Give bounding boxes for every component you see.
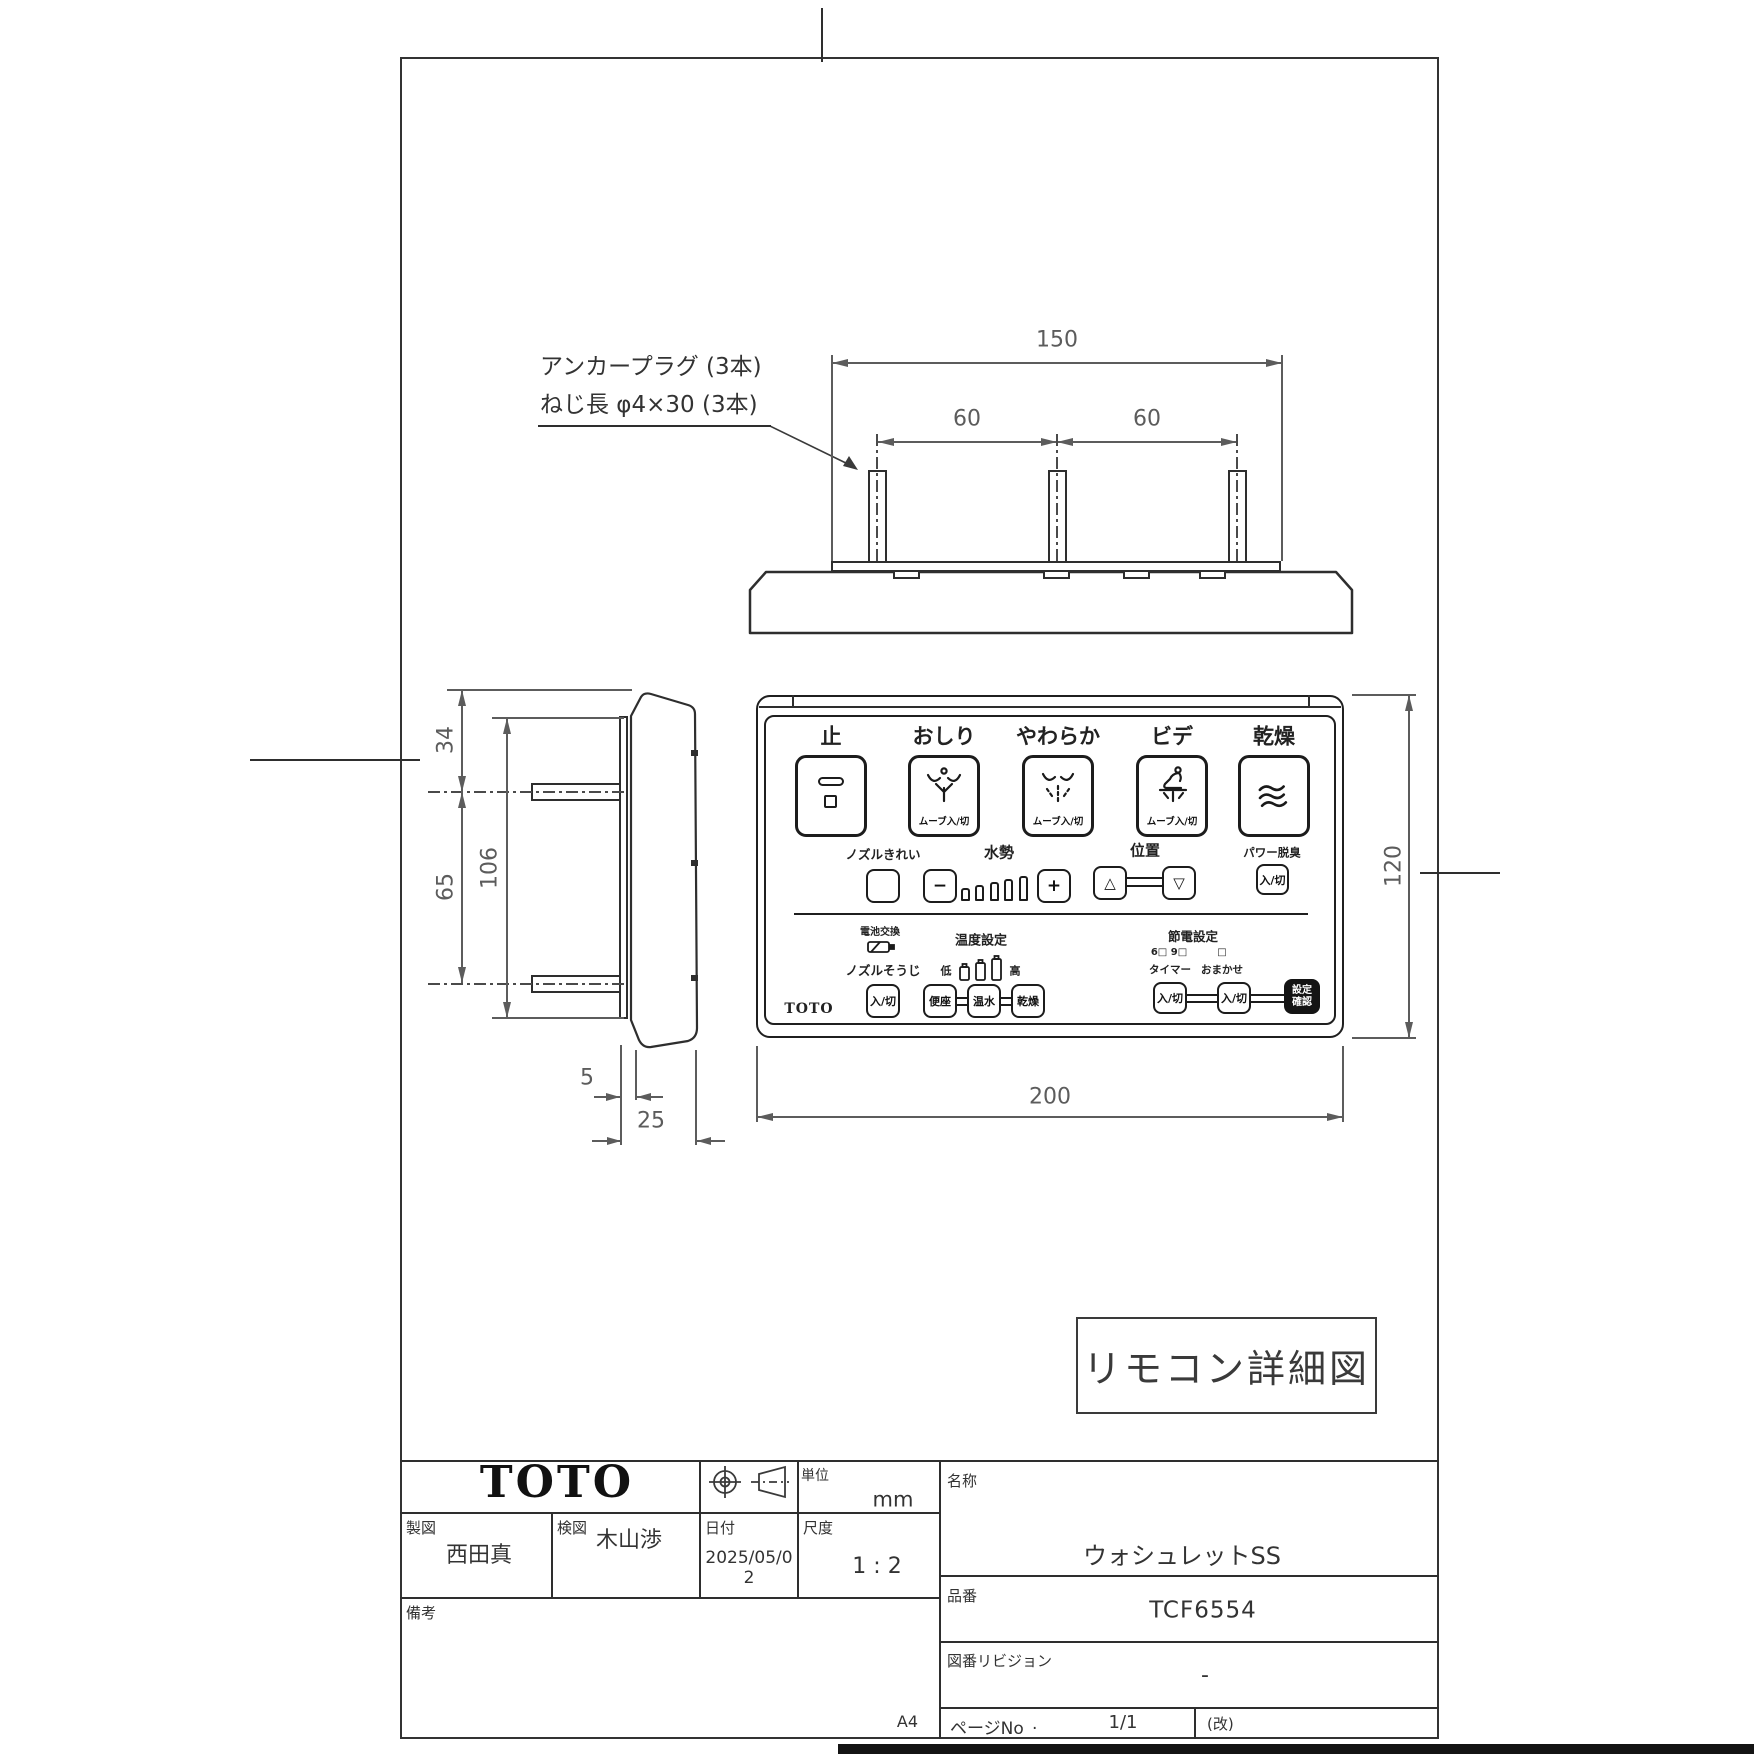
ext-line xyxy=(756,1046,758,1122)
name-label: 名称 xyxy=(947,1470,977,1491)
battery-change-label: 電池交換 xyxy=(860,928,900,938)
plate-notch xyxy=(1308,695,1310,706)
dim-106: 106 xyxy=(478,847,503,889)
bidet-button: ムーブ入/切 xyxy=(1136,755,1208,837)
nozzle-wash-label: ノズルそうじ xyxy=(845,965,920,978)
eco-setting-label: 節電設定 xyxy=(1168,931,1218,944)
dim-arrow xyxy=(1327,1113,1343,1121)
dry-label: 乾燥 xyxy=(1253,727,1295,748)
scan-edge-bar xyxy=(838,1744,1754,1754)
ext-line xyxy=(492,717,624,719)
dim-line-120 xyxy=(1408,695,1410,1038)
date-value: 2025/05/02 xyxy=(704,1548,794,1589)
mounting-plate-side-view xyxy=(619,716,628,1019)
drafter-label: 製図 xyxy=(406,1517,436,1538)
dim-150: 150 xyxy=(1036,328,1078,353)
eco-auto-option: □ xyxy=(1217,948,1226,958)
deodorizer-onoff-button: 入/切 xyxy=(1256,864,1289,895)
nozzle-wash-onoff-button: 入/切 xyxy=(866,984,900,1018)
part-number: TCF6554 xyxy=(1149,1600,1257,1623)
dim-arrow xyxy=(458,776,466,792)
scale-value: 1 : 2 xyxy=(852,1556,901,1578)
page-label: ページNo xyxy=(950,1714,1024,1739)
dim-arrow xyxy=(607,1137,621,1145)
button-link xyxy=(1187,994,1217,1003)
remote-brand-logo: TOTO xyxy=(784,1002,833,1016)
title-block-line xyxy=(939,1460,941,1739)
dim-arrow xyxy=(1405,1022,1413,1038)
dim-arrow xyxy=(697,1137,711,1145)
move-onoff-label: ムーブ入/切 xyxy=(1147,817,1197,827)
title-block-line xyxy=(699,1460,701,1597)
title-block-line xyxy=(400,1512,939,1514)
dry-button xyxy=(1238,755,1310,837)
dim-65: 65 xyxy=(434,873,459,901)
dim-line-200 xyxy=(757,1116,1343,1118)
dim-arrow xyxy=(1057,438,1073,446)
water-level-bar-2 xyxy=(975,885,984,901)
dim-arrow xyxy=(832,359,848,367)
dim-arrow xyxy=(458,690,466,706)
dim-5: 5 xyxy=(580,1066,594,1091)
dim-arrow xyxy=(458,967,466,983)
water-level-bar-5 xyxy=(1019,876,1028,901)
dim-arrow xyxy=(1405,695,1413,711)
dim-arrow xyxy=(606,1093,620,1101)
page-dot: . xyxy=(1032,1714,1037,1734)
revision-label: 図番リビジョン xyxy=(947,1650,1052,1671)
temp-gauge-icon xyxy=(958,955,1006,982)
remarks-label: 備考 xyxy=(406,1602,436,1623)
date-label: 日付 xyxy=(705,1517,735,1538)
setting-confirm-button: 設定 確認 xyxy=(1284,979,1320,1014)
stop-bar-icon xyxy=(818,777,844,786)
confirm-label-1: 設定 xyxy=(1292,985,1312,997)
revision-value: - xyxy=(1201,1665,1209,1687)
dim-line-150 xyxy=(832,362,1282,364)
dim-arrow xyxy=(1221,438,1237,446)
dim-arrow xyxy=(757,1113,773,1121)
move-onoff-label: ムーブ入/切 xyxy=(1033,817,1083,827)
dim-34: 34 xyxy=(434,726,459,754)
screw-centerline xyxy=(1236,434,1238,561)
dim-line-65 xyxy=(461,792,463,983)
deodorizer-label: パワー脱臭 xyxy=(1243,847,1301,859)
centering-mark-right xyxy=(1420,872,1500,874)
soft-button: ムーブ入/切 xyxy=(1022,755,1094,837)
company-logo: TOTO xyxy=(480,1461,634,1505)
title-block-line xyxy=(1194,1707,1196,1739)
centering-mark-top xyxy=(821,8,823,62)
screw-centerline-side xyxy=(428,983,624,985)
water-pressure-label: 水勢 xyxy=(984,846,1014,861)
plate-tab xyxy=(1043,570,1070,579)
checker-label: 検図 xyxy=(557,1517,587,1538)
button-link xyxy=(957,997,967,1006)
checker-name: 木山渉 xyxy=(596,1530,662,1552)
ext-line xyxy=(620,1045,622,1145)
product-name: ウォシュレットSS xyxy=(1083,1544,1281,1568)
dim-arrow xyxy=(1266,359,1282,367)
plate-tab xyxy=(1123,570,1150,579)
dim-arrow xyxy=(637,1093,651,1101)
soft-label: やわらか xyxy=(1016,727,1100,748)
third-angle-projection-icon xyxy=(707,1461,791,1503)
confirm-label-2: 確認 xyxy=(1292,997,1312,1009)
ext-line xyxy=(1281,355,1283,561)
oshiri-button: ムーブ入/切 xyxy=(908,755,980,837)
detail-stamp-text: リモコン詳細図 xyxy=(1083,1338,1370,1393)
temp-setting-label: 温度設定 xyxy=(955,935,1007,948)
water-plus-button: + xyxy=(1037,869,1071,903)
part-label: 品番 xyxy=(947,1585,977,1606)
dim-25: 25 xyxy=(637,1109,665,1134)
plate-notch xyxy=(792,695,794,706)
panel-separator xyxy=(794,913,1308,915)
seat-temp-button: 便座 xyxy=(923,984,957,1018)
warm-air-icon xyxy=(1253,781,1295,813)
dim-arrow xyxy=(503,1002,511,1018)
leader-underline xyxy=(538,425,771,427)
nozzle-clean-label: ノズルきれい xyxy=(845,849,920,862)
soft-spray-icon xyxy=(1038,765,1078,803)
detail-stamp-box: リモコン詳細図 xyxy=(1076,1317,1377,1414)
timer-label: タイマー xyxy=(1149,965,1191,976)
timer-onoff-button: 入/切 xyxy=(1153,982,1187,1014)
dim-60-right: 60 xyxy=(1133,407,1161,432)
page-value: 1/1 xyxy=(1109,1714,1138,1732)
dim-arrow xyxy=(1041,438,1057,446)
move-onoff-label: ムーブ入/切 xyxy=(919,817,969,827)
unit-value: mm xyxy=(873,1490,914,1511)
dim-arrow xyxy=(503,718,511,734)
unit-label: 単位 xyxy=(801,1465,829,1485)
plate-tab xyxy=(1199,570,1226,579)
dim-arrow xyxy=(458,792,466,808)
case-seam xyxy=(759,706,1341,708)
position-label: 位置 xyxy=(1130,844,1160,859)
battery-icon xyxy=(867,940,895,954)
scale-label: 尺度 xyxy=(803,1517,833,1538)
nozzle-clean-button xyxy=(866,869,900,903)
screw-length-note: ねじ長 φ4×30 (3本) xyxy=(540,394,758,417)
button-link xyxy=(1001,997,1011,1006)
water-level-bar-1 xyxy=(961,888,970,901)
oshiri-label: おしり xyxy=(913,727,976,748)
dim-200: 200 xyxy=(1029,1085,1071,1110)
screw-centerline xyxy=(1056,434,1058,561)
position-down-button: ▽ xyxy=(1162,866,1196,900)
bidet-figure-icon xyxy=(1152,765,1192,803)
drawing-sheet: アンカープラグ (3本) ねじ長 φ4×30 (3本) 150 60 60 34… xyxy=(0,0,1754,1754)
centering-mark-left xyxy=(250,759,420,761)
remote-front-view: 止 おしり やわらか ビデ 乾燥 ムーブ入/切 xyxy=(756,695,1344,1038)
title-block-line xyxy=(939,1575,1439,1577)
dim-60-left: 60 xyxy=(953,407,981,432)
paper-size: A4 xyxy=(880,1714,918,1730)
title-block-line xyxy=(400,1597,939,1599)
water-level-bar-4 xyxy=(1004,879,1013,901)
dim-arrow xyxy=(878,438,894,446)
title-block-line xyxy=(797,1460,799,1597)
dim-120: 120 xyxy=(1382,845,1407,887)
screw-centerline xyxy=(876,434,878,561)
button-link xyxy=(1251,994,1284,1003)
ext-line xyxy=(492,1017,624,1019)
title-block-line xyxy=(939,1707,1439,1709)
stop-button xyxy=(795,755,867,837)
bidet-label: ビデ xyxy=(1151,727,1193,748)
auto-onoff-button: 入/切 xyxy=(1217,982,1251,1014)
stop-label: 止 xyxy=(821,727,842,748)
button-link xyxy=(1127,877,1162,887)
water-level-bar-3 xyxy=(990,882,999,901)
title-block-line xyxy=(551,1512,553,1597)
revision-mark: (改) xyxy=(1207,1713,1234,1734)
oshiri-spray-icon xyxy=(924,765,964,803)
plate-tab xyxy=(893,570,920,579)
warm-water-button: 温水 xyxy=(967,984,1001,1018)
ext-line xyxy=(695,1050,697,1145)
eco-timer-options: 6□ 9□ xyxy=(1151,948,1187,958)
position-up-button: △ xyxy=(1093,866,1127,900)
ext-line xyxy=(831,355,833,561)
water-minus-button: − xyxy=(923,869,957,903)
dryer-temp-button: 乾燥 xyxy=(1011,984,1045,1018)
temp-low-label: 低 xyxy=(941,966,952,977)
dim-line-106 xyxy=(506,718,508,1018)
drafter-name: 西田真 xyxy=(446,1545,512,1567)
ext-line xyxy=(1342,1046,1344,1122)
ext-line xyxy=(447,689,632,691)
title-block-line xyxy=(939,1641,1439,1643)
temp-high-label: 高 xyxy=(1010,966,1021,977)
stop-square-icon xyxy=(824,795,837,808)
auto-label: おまかせ xyxy=(1201,965,1243,976)
anchor-plug-note: アンカープラグ (3本) xyxy=(540,356,762,379)
